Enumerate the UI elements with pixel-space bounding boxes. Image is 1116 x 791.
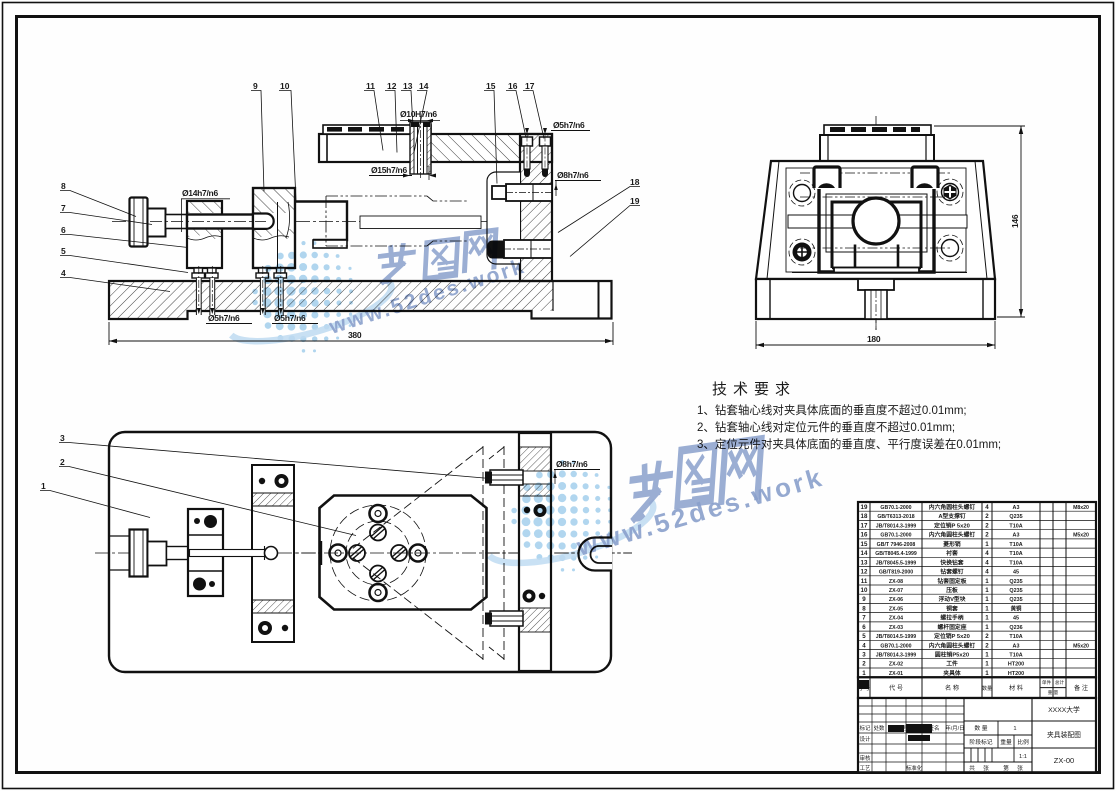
svg-text:Ø5h7/n6: Ø5h7/n6 [553, 120, 585, 130]
svg-text:7: 7 [862, 615, 866, 622]
svg-text:T10A: T10A [1009, 542, 1022, 548]
svg-text:材 料: 材 料 [1009, 684, 1023, 692]
svg-text:备 注: 备 注 [1074, 684, 1088, 692]
svg-text:4: 4 [985, 504, 989, 511]
svg-text:XXXX大学: XXXX大学 [1048, 705, 1080, 714]
svg-text:1: 1 [985, 541, 989, 548]
svg-text:数量: 数量 [982, 685, 992, 692]
svg-text:5: 5 [61, 246, 66, 256]
svg-text:1:1: 1:1 [1019, 754, 1027, 760]
svg-text:Q235: Q235 [1009, 514, 1022, 520]
svg-text:2: 2 [60, 457, 65, 467]
svg-text:阶段标记: 阶段标记 [969, 738, 992, 746]
svg-text:夹具体: 夹具体 [943, 669, 961, 677]
svg-text:4: 4 [985, 569, 989, 576]
svg-text:HT200: HT200 [1008, 662, 1024, 668]
svg-text:夹具装配图: 夹具装配图 [1047, 730, 1081, 739]
svg-text:1: 1 [985, 661, 989, 668]
svg-text:1: 1 [985, 670, 989, 677]
svg-text:内六角圆柱头螺钉: 内六角圆柱头螺钉 [929, 531, 976, 539]
svg-text:10: 10 [280, 81, 290, 91]
svg-text:2: 2 [985, 522, 989, 529]
svg-text:12: 12 [861, 569, 868, 576]
svg-text:1: 1 [41, 481, 46, 491]
svg-text:7: 7 [61, 203, 66, 213]
svg-text:菱形销: 菱形销 [942, 540, 961, 548]
svg-text:M5x20: M5x20 [1073, 643, 1089, 649]
svg-text:16: 16 [861, 532, 868, 539]
svg-text:2、钻套轴心线对定位元件的垂直度不超过0.01mm;: 2、钻套轴心线对定位元件的垂直度不超过0.01mm; [697, 420, 955, 434]
svg-text:ZX-08: ZX-08 [889, 579, 903, 585]
svg-text:ZX-07: ZX-07 [889, 588, 903, 594]
svg-text:T10A: T10A [1009, 523, 1022, 529]
svg-text:3: 3 [60, 433, 65, 443]
svg-text:ZX-03: ZX-03 [889, 625, 903, 631]
svg-text:工艺: 工艺 [860, 765, 871, 772]
svg-text:17: 17 [525, 81, 535, 91]
svg-text:内六角圆柱头螺钉: 内六角圆柱头螺钉 [929, 641, 976, 649]
svg-text:4: 4 [985, 550, 989, 557]
svg-text:13: 13 [403, 81, 413, 91]
svg-text:9: 9 [862, 596, 866, 603]
svg-text:18: 18 [861, 513, 868, 520]
svg-text:1: 1 [985, 624, 989, 631]
svg-text:Ø5h7/n6: Ø5h7/n6 [208, 313, 240, 323]
svg-text:16: 16 [508, 81, 518, 91]
svg-text:标记: 标记 [860, 724, 871, 732]
svg-text:19: 19 [630, 196, 640, 206]
svg-text:数 量: 数 量 [974, 724, 987, 732]
svg-text:13: 13 [861, 559, 868, 566]
svg-text:重 量: 重 量 [1048, 689, 1059, 696]
svg-text:146: 146 [1010, 214, 1020, 228]
svg-text:Q235: Q235 [1009, 597, 1022, 603]
svg-text:45: 45 [1013, 616, 1019, 622]
svg-text:2: 2 [862, 661, 866, 668]
svg-text:定位销P 5x20: 定位销P 5x20 [933, 632, 970, 640]
svg-text:2: 2 [985, 532, 989, 539]
svg-text:定位销P 5x20: 定位销P 5x20 [933, 521, 970, 529]
svg-text:钻套螺钉: 钻套螺钉 [940, 568, 963, 576]
svg-text:1: 1 [985, 605, 989, 612]
svg-text:4: 4 [985, 559, 989, 566]
svg-text:2: 2 [985, 633, 989, 640]
svg-text:8: 8 [862, 605, 866, 612]
svg-text:17: 17 [861, 522, 868, 529]
svg-text:11: 11 [366, 81, 375, 91]
svg-text:A型支撑钉: A型支撑钉 [938, 512, 966, 520]
svg-text:内六角圆柱头螺钉: 内六角圆柱头螺钉 [929, 503, 976, 511]
svg-text:比例: 比例 [1017, 738, 1029, 746]
svg-text:ZX-06: ZX-06 [889, 597, 903, 603]
svg-text:GB/T6313-2018: GB/T6313-2018 [877, 514, 914, 520]
svg-text:审核: 审核 [860, 754, 871, 762]
svg-text:T10A: T10A [1009, 634, 1022, 640]
svg-text:重量: 重量 [1000, 738, 1012, 746]
svg-text:GB/T819-2000: GB/T819-2000 [879, 570, 913, 576]
svg-text:标准化: 标准化 [906, 764, 923, 772]
svg-text:ZX-00: ZX-00 [1054, 756, 1074, 765]
svg-text:JB/T8014.3-1999: JB/T8014.3-1999 [876, 653, 916, 659]
svg-text:ZX-05: ZX-05 [889, 606, 903, 612]
svg-text:名 称: 名 称 [945, 684, 959, 692]
svg-text:Q236: Q236 [1009, 625, 1022, 631]
svg-text:铜套: 铜套 [946, 604, 958, 612]
svg-text:1: 1 [985, 578, 989, 585]
svg-text:GB/T 7946-2008: GB/T 7946-2008 [877, 542, 916, 548]
svg-text:GB/T8045.4-1999: GB/T8045.4-1999 [875, 551, 917, 557]
svg-text:压板: 压板 [946, 586, 958, 594]
svg-text:张: 张 [983, 764, 989, 772]
svg-text:15: 15 [861, 541, 868, 548]
svg-text:8: 8 [61, 181, 66, 191]
svg-text:1: 1 [985, 652, 989, 659]
svg-text:单件: 单件 [1042, 679, 1052, 686]
svg-text:总计: 总计 [1055, 679, 1065, 686]
svg-text:1、钻套轴心线对夹具体底面的垂直度不超过0.01mm;: 1、钻套轴心线对夹具体底面的垂直度不超过0.01mm; [697, 403, 967, 417]
svg-text:T10A: T10A [1009, 551, 1022, 557]
svg-text:螺拉手柄: 螺拉手柄 [940, 614, 963, 622]
svg-text:年/月/日: 年/月/日 [945, 724, 964, 732]
svg-text:9: 9 [253, 81, 258, 91]
svg-text:5: 5 [862, 633, 866, 640]
svg-text:代 号: 代 号 [889, 684, 903, 692]
svg-text:黄铜: 黄铜 [1011, 604, 1022, 612]
svg-text:张: 张 [1017, 764, 1023, 772]
svg-text:4: 4 [862, 642, 866, 649]
svg-text:圆柱销P5x20: 圆柱销P5x20 [935, 651, 969, 659]
svg-text:10: 10 [861, 587, 868, 594]
svg-text:A3: A3 [1013, 643, 1020, 649]
svg-text:技术要求: 技术要求 [712, 381, 796, 398]
svg-text:螺杆固定座: 螺杆固定座 [938, 623, 967, 631]
svg-text:T10A: T10A [1009, 560, 1022, 566]
svg-text:ZX-01: ZX-01 [889, 671, 903, 677]
svg-text:15: 15 [486, 81, 496, 91]
svg-text:4: 4 [61, 268, 66, 278]
svg-text:JB/T8014.3-1999: JB/T8014.3-1999 [876, 523, 916, 529]
svg-text:GB70.1-2000: GB70.1-2000 [880, 533, 911, 539]
svg-text:1: 1 [985, 587, 989, 594]
svg-text:12: 12 [387, 81, 397, 91]
svg-text:HT200: HT200 [1008, 671, 1024, 677]
svg-text:Q235: Q235 [1009, 588, 1022, 594]
svg-text:浮动V型块: 浮动V型块 [938, 595, 965, 603]
svg-text:衬套: 衬套 [946, 549, 958, 557]
svg-text:JB/T8014.5-1999: JB/T8014.5-1999 [876, 634, 916, 640]
svg-text:工件: 工件 [946, 660, 958, 668]
svg-text:GB70.1-2000: GB70.1-2000 [880, 505, 911, 511]
svg-text:共: 共 [969, 764, 975, 772]
svg-text:18: 18 [630, 177, 640, 187]
svg-text:T10A: T10A [1009, 653, 1022, 659]
svg-text:Q235: Q235 [1009, 579, 1022, 585]
svg-text:2: 2 [985, 642, 989, 649]
svg-text:Ø8h7/n6: Ø8h7/n6 [556, 459, 588, 469]
svg-text:Ø15h7/n6: Ø15h7/n6 [371, 165, 407, 175]
svg-text:Ø14h7/n6: Ø14h7/n6 [182, 188, 218, 198]
svg-text:ZX-04: ZX-04 [889, 616, 903, 622]
svg-text:钻套固定板: 钻套固定板 [938, 577, 967, 585]
svg-text:M8x20: M8x20 [1073, 505, 1089, 511]
svg-text:JB/T8045.5-1999: JB/T8045.5-1999 [876, 560, 916, 566]
svg-text:A3: A3 [1013, 505, 1020, 511]
svg-text:处数: 处数 [874, 724, 885, 732]
svg-text:14: 14 [861, 550, 868, 557]
svg-text:6: 6 [61, 225, 66, 235]
svg-text:第: 第 [1003, 764, 1009, 772]
svg-text:180: 180 [867, 334, 881, 344]
svg-text:3: 3 [862, 652, 866, 659]
svg-text:6: 6 [862, 624, 866, 631]
svg-text:GB70.1-2000: GB70.1-2000 [880, 643, 911, 649]
svg-text:1: 1 [862, 670, 866, 677]
svg-text:2: 2 [985, 513, 989, 520]
svg-text:A3: A3 [1013, 533, 1020, 539]
svg-text:14: 14 [419, 81, 429, 91]
svg-text:1: 1 [985, 615, 989, 622]
svg-text:1: 1 [985, 596, 989, 603]
svg-text:19: 19 [861, 504, 868, 511]
svg-text:45: 45 [1013, 570, 1019, 576]
svg-text:ZX-02: ZX-02 [889, 662, 903, 668]
svg-text:11: 11 [861, 578, 868, 585]
svg-text:M5x20: M5x20 [1073, 533, 1089, 539]
svg-text:快换钻套: 快换钻套 [940, 558, 963, 566]
svg-text:Ø10H7/n6: Ø10H7/n6 [400, 109, 437, 119]
svg-text:设计: 设计 [860, 735, 871, 743]
svg-text:Ø8h7/n6: Ø8h7/n6 [557, 170, 589, 180]
svg-text:1: 1 [1013, 726, 1016, 732]
